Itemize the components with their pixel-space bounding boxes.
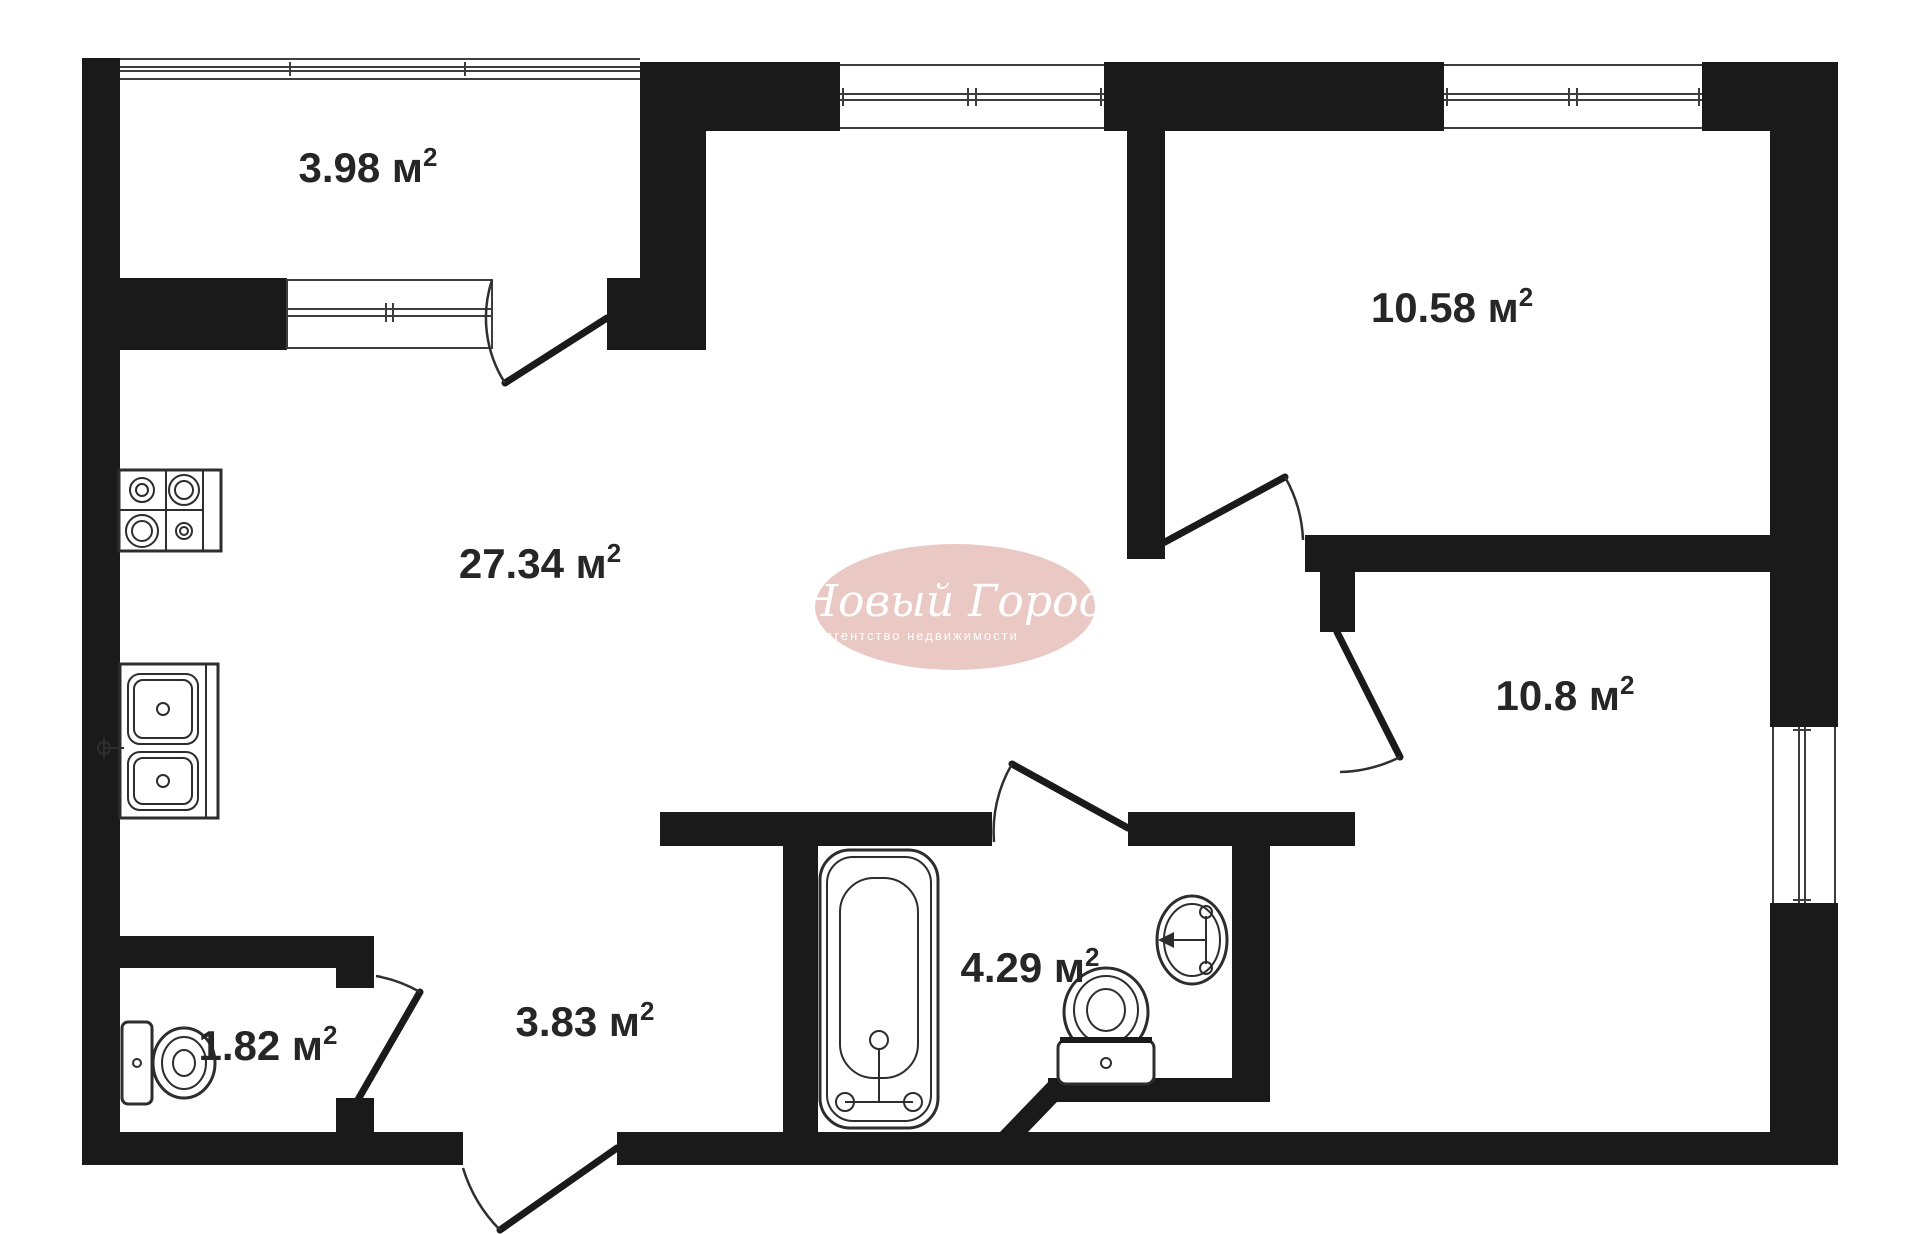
watermark-brand: Новый Город [799,576,1107,627]
door-arc [486,280,505,383]
toilet-tank [122,1022,152,1104]
stove-icon [119,470,221,551]
toilet-tank [1058,1040,1154,1084]
wc-door [352,976,420,1110]
room-bedroom-top: 10.58 м2 [1371,282,1533,331]
balcony-top-window [120,59,640,79]
agency-watermark: Новый Город агентство недвижимости [799,544,1107,670]
wc-door-post-top [336,936,374,988]
bath-top-wall-b [1128,812,1355,846]
door-leaf [500,1148,617,1230]
bedroom-right-side-window [1773,727,1835,903]
window-frame [287,280,492,348]
door-arc [463,1168,500,1230]
door-leaf [1012,764,1128,828]
room-wc: 1.82 м2 [199,1020,338,1069]
room-label-bathroom: 4.29 м2 [961,942,1100,991]
door-arc [1285,477,1303,540]
door-leaf [352,992,420,1110]
balcony-bottom-wall [120,278,287,350]
bedroom-top-door [1165,477,1303,542]
bedroom-top-window [1444,65,1702,128]
balcony-sill-window [287,280,492,348]
room-hallway: 3.83 м2 [516,996,655,1045]
floor-plan: 3.98 м2 27.34 м2 10.58 м2 10.8 м2 4.29 м… [0,0,1920,1234]
door-leaf [1337,632,1400,757]
watermark-tagline: агентство недвижимости [825,628,1019,643]
room-label-balcony: 3.98 м2 [299,142,438,191]
wc-top-wall [120,936,374,968]
door-arc [994,764,1012,842]
door-arc [376,976,420,992]
wall-top-b [1104,62,1444,131]
room-bedroom-right: 10.8 м2 [1496,670,1635,719]
corridor-bedroom-post [1320,572,1355,632]
toilet-tank-lid [1060,1037,1152,1043]
door-leaf [1165,477,1285,542]
entrance-door [463,1148,617,1230]
room-bathroom: 4.29 м2 [961,942,1100,991]
hall-bath-wall [783,846,818,1132]
wall-right-upper [1770,62,1838,727]
wall-bottom-right [617,1132,1838,1165]
wall-top-a [640,62,840,131]
door-leaf [505,318,607,383]
bathroom-door [994,764,1128,842]
room-label-living: 27.34 м2 [459,538,621,587]
bedroom-top-left-wall [1127,131,1165,559]
balcony-door [486,280,607,383]
room-balcony: 3.98 м2 [299,142,438,191]
wall-right-lower [1770,903,1838,1165]
room-label-hallway: 3.83 м2 [516,996,655,1045]
washbasin-icon [1157,896,1227,984]
room-living-kitchen: 27.34 м2 [459,538,621,587]
bath-right-wall [1232,846,1270,1085]
balcony-door-block [607,278,706,350]
living-room-window [840,65,1104,128]
bath-diagonal-wall [1000,1078,1080,1132]
bath-top-wall-a [660,812,992,846]
bedroom-top-bottom-wall [1305,535,1770,572]
wall-left [82,58,120,1162]
room-label-wc: 1.82 м2 [199,1020,338,1069]
door-arc [1340,757,1400,772]
room-label-bedroom-top: 10.58 м2 [1371,282,1533,331]
room-label-bedroom-right: 10.8 м2 [1496,670,1635,719]
balcony-right-wall [640,131,706,278]
wall-bottom-left [82,1132,463,1165]
bedroom-right-door [1337,632,1400,772]
bathtub-icon [820,850,938,1128]
